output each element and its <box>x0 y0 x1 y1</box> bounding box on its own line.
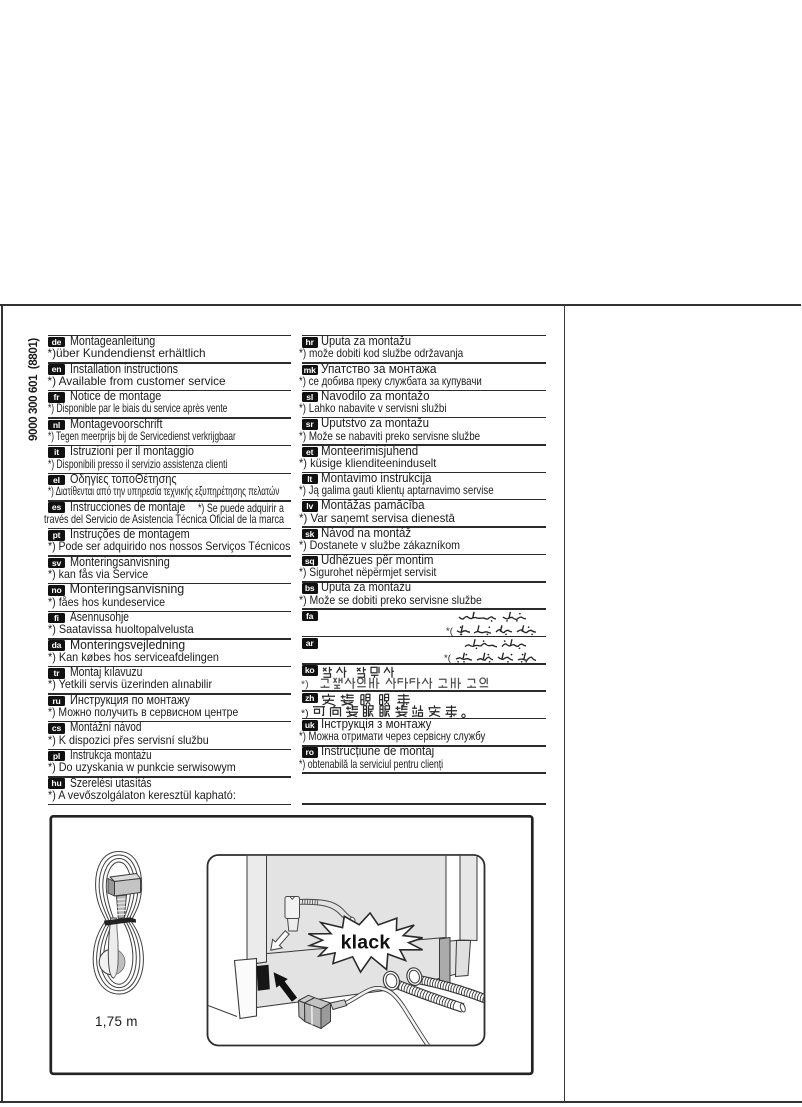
svg-text:*): *) <box>301 679 309 691</box>
svg-text:klack: klack <box>341 932 391 954</box>
svg-text:*(: *( <box>444 653 452 664</box>
svg-text:*): *) <box>301 707 309 719</box>
svg-text:*(: *( <box>446 626 454 637</box>
svg-text:1,75 m: 1,75 m <box>95 1014 138 1029</box>
